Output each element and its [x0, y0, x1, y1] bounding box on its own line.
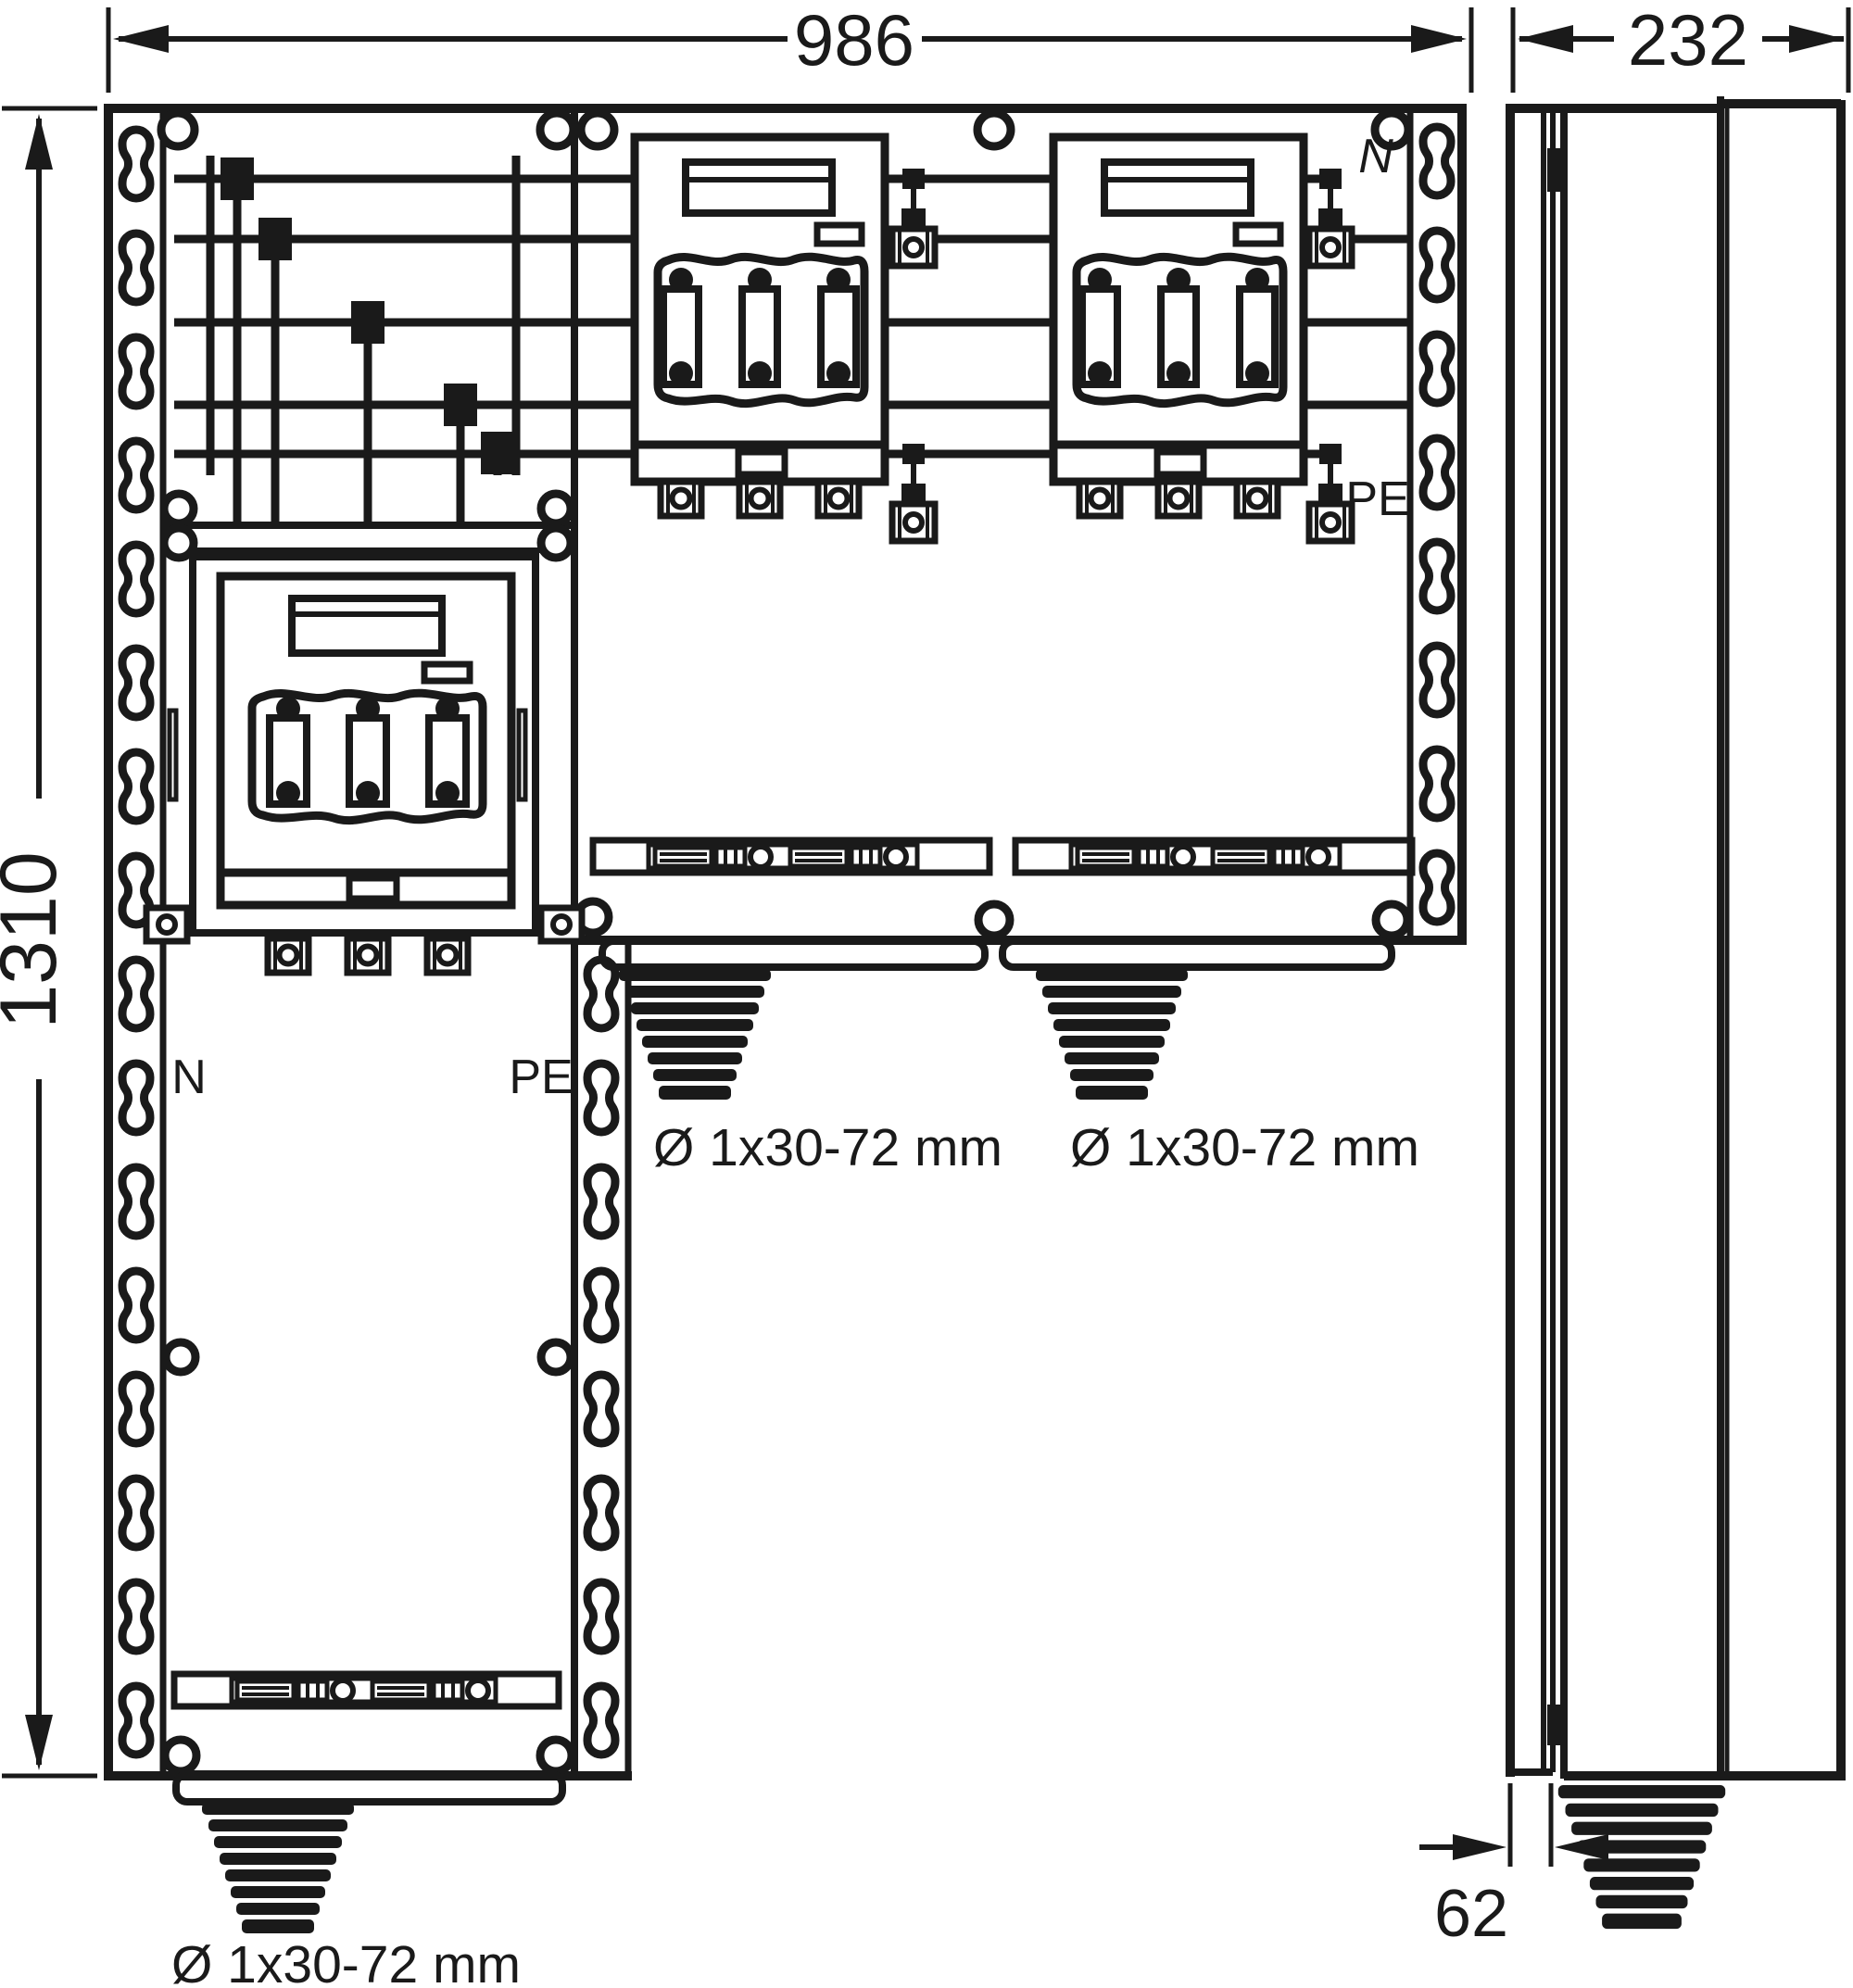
busbar-tap [351, 301, 384, 344]
mounting-slot [587, 1167, 615, 1236]
mounting-slot [122, 1582, 150, 1651]
neutral-label: N [171, 1051, 207, 1104]
wall-bracket [1547, 1705, 1560, 1745]
dimension-depth: 232 [1513, 0, 1848, 93]
mounting-slot [1423, 231, 1451, 299]
arrow-right-icon [1789, 25, 1845, 53]
wall-bracket [1547, 148, 1560, 192]
pe-terminal [892, 444, 935, 541]
busbar-tap [481, 432, 514, 474]
mounting-slot [122, 1375, 150, 1443]
cable-gland [1036, 969, 1188, 1100]
dimension-height: 1310 [0, 108, 97, 1776]
neutral-label: N [1358, 130, 1393, 183]
mounting-slot [587, 1375, 615, 1443]
busbar-tap [221, 157, 254, 200]
mounting-slot [1423, 646, 1451, 714]
width-dimension-label: 986 [794, 0, 914, 81]
busbar-tap [258, 218, 292, 260]
terminal-lug [427, 938, 468, 973]
fuse-switch-1 [146, 557, 582, 973]
strip-connector [1213, 847, 1329, 867]
mounting-slot [587, 1271, 615, 1340]
mounting-slot [122, 752, 150, 821]
depth-dimension-label: 232 [1628, 0, 1748, 81]
mounting-slot [122, 441, 150, 510]
inner-mounting-rail [587, 960, 615, 1755]
strip-connector [372, 1680, 488, 1701]
mounting-slot [122, 1686, 150, 1755]
mounting-slot [1423, 127, 1451, 195]
mounting-slot [122, 130, 150, 198]
pe-label: PE [509, 1051, 573, 1104]
mounting-slot [122, 1271, 150, 1340]
fuse-switch-2 [635, 137, 885, 516]
mounting-slot [587, 1582, 615, 1651]
mounting-slot [122, 960, 150, 1028]
mounting-slot [122, 545, 150, 613]
mounting-slot [1423, 853, 1451, 922]
terminal-strip-2 [1015, 840, 1412, 873]
mounting-slot [122, 1063, 150, 1132]
arrow-left-icon [113, 25, 169, 53]
strip-connector [790, 847, 906, 867]
mounting-slot [1423, 542, 1451, 610]
mounting-slot [587, 1478, 615, 1547]
mounting-slot [122, 1167, 150, 1236]
mounting-slot [122, 648, 150, 717]
side-view [1510, 96, 1841, 1929]
mounting-slot [122, 1478, 150, 1547]
right-mounting-rail [1423, 127, 1451, 922]
terminal-lug [268, 938, 309, 973]
dimension-width: 986 [108, 0, 1471, 93]
height-dimension-label: 1310 [0, 851, 73, 1028]
front-view: Ø 1x30-72 mm Ø 1x30-72 mm Ø 1x30-72 mm N… [104, 104, 1467, 1988]
gland-size-label: Ø 1x30-72 mm [171, 1935, 521, 1988]
cable-gland [1558, 1785, 1725, 1929]
cable-gland [619, 969, 771, 1100]
strip-connector [1078, 847, 1193, 867]
arrow-right-icon [1453, 1834, 1506, 1860]
terminal-lug [347, 938, 388, 973]
gland-size-label: Ø 1x30-72 mm [653, 1118, 1002, 1177]
offset-dimension-label: 62 [1434, 1877, 1508, 1951]
strip-connector [655, 847, 771, 867]
arrow-left-icon [1518, 25, 1573, 53]
busbar-tap [444, 384, 477, 426]
arrow-up-icon [25, 114, 53, 170]
mounting-slot [1423, 749, 1451, 818]
pe-label: PE [1345, 472, 1409, 526]
mounting-slot [1423, 334, 1451, 403]
mounting-slot [587, 1063, 615, 1132]
wiring-diagram: 986 232 1310 62 [0, 0, 1853, 1988]
gland-size-label: Ø 1x30-72 mm [1070, 1118, 1419, 1177]
terminal-strip-3 [174, 1674, 559, 1706]
mounting-slot [122, 337, 150, 406]
cable-gland [202, 1803, 354, 1933]
fuse-switch-3 [1053, 137, 1304, 516]
neutral-terminal [892, 169, 935, 266]
mounting-slot [587, 1686, 615, 1755]
mounting-slot [1423, 438, 1451, 507]
enclosure-drawing-page: 986 232 1310 62 [0, 0, 1853, 1988]
arrow-down-icon [25, 1715, 53, 1770]
strip-connector [237, 1680, 353, 1701]
arrow-right-icon [1411, 25, 1467, 53]
terminal-strip-1 [593, 840, 990, 873]
neutral-terminal [1309, 169, 1352, 266]
mounting-slot [122, 233, 150, 302]
